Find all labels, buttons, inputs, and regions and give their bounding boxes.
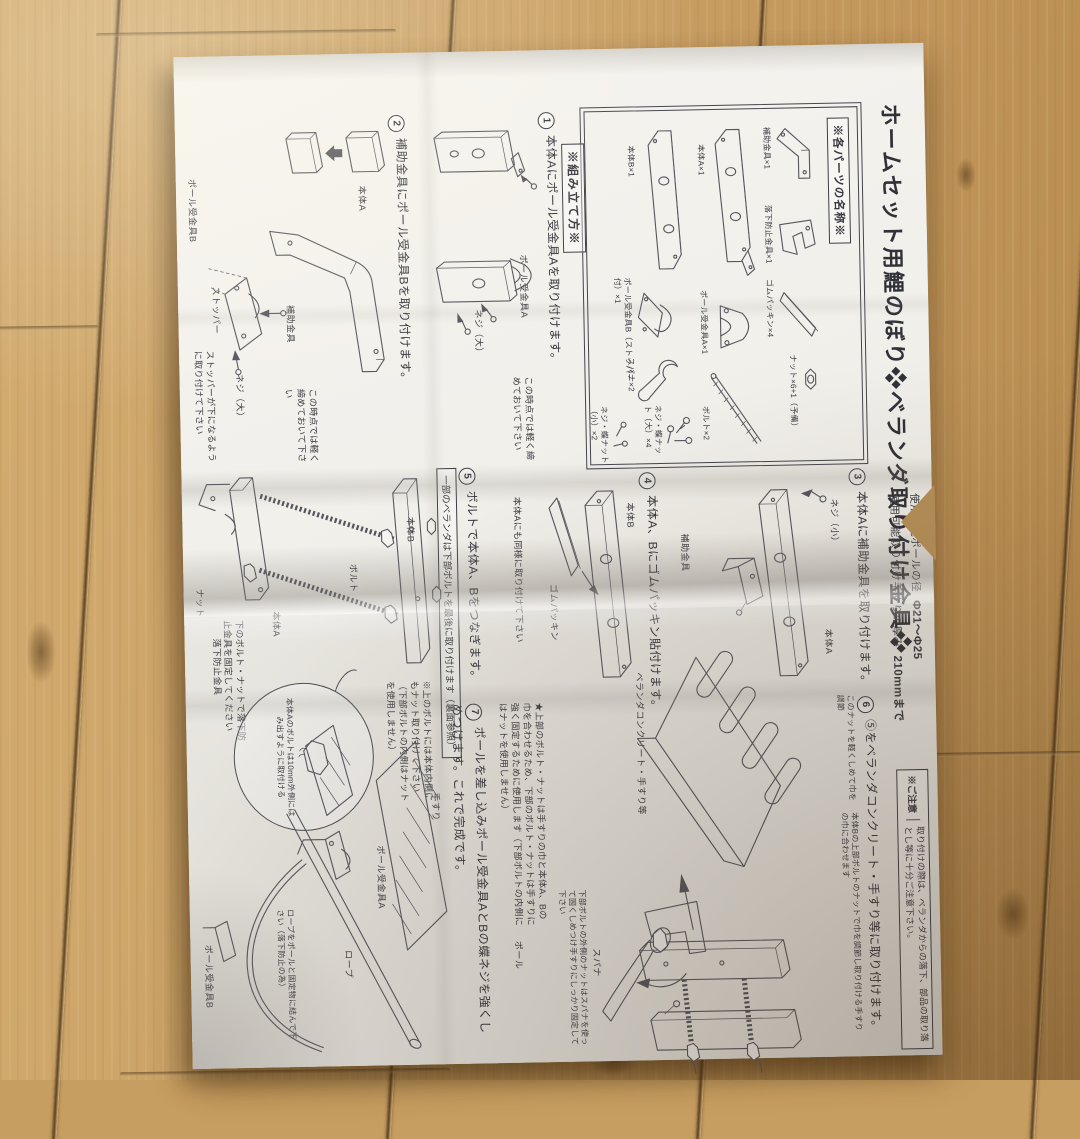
step7-number: 7	[465, 703, 482, 720]
part-honA-icon	[705, 121, 758, 280]
part-hojo-label: 補助金具×1	[761, 127, 772, 170]
step1-diagram	[412, 112, 543, 370]
part-hojo-bracket-icon	[773, 122, 818, 193]
spec-block: 使用可能ポールの径Φ21～Φ25 使用可能取り付け手すりの厚み210mmまで	[884, 493, 927, 722]
part-neji-dai-icon	[662, 412, 695, 457]
caution-text: 取り付けの際は、ベランダからの落下、部品の取り落とし等に十分ご注意下さい。	[902, 826, 930, 1043]
step7-pole-label: ポール	[512, 941, 526, 970]
part-honB-icon	[637, 122, 688, 281]
part-bolt-icon	[709, 367, 771, 456]
step2-diagram	[182, 115, 399, 471]
step5-heading: 5ボルトで本体A、Bをつなぎます。	[458, 467, 484, 683]
step3-heading: 3本体Aに補助金具を取り付けます。	[848, 468, 874, 688]
part-gomu-strip-icon	[776, 286, 823, 343]
spec-pole-label: 使用可能ポールの径	[908, 493, 922, 592]
part-gomu-label: ゴムパッキン×4	[764, 279, 775, 338]
plank-joint	[120, 1068, 450, 1077]
part-neji-dai-label: ネジ・蝶ナット（大）×4	[642, 405, 663, 461]
assembly-header: ※組み立て方※	[561, 143, 586, 252]
step1-note: この時点では軽く締めておいて下さい	[510, 376, 536, 466]
caution-box: ※ご注意 取り付けの際は、ベランダからの落下、部品の取り落とし等に十分ご注意下さ…	[896, 769, 933, 1050]
photo-of-instruction-sheet: { "title": "ホームセット用鯉のぼり❖ベランダ取り付け金具❖", "s…	[0, 0, 1080, 1080]
step7-star-note: ★上部のボルト・ナットは手すりの巾と本体A、Bの巾を合わせるため、下部のボルト・…	[496, 702, 549, 929]
part-nut-icon	[801, 368, 819, 392]
spec-wall-value: 210mmまで	[891, 655, 904, 721]
step1-section: 1本体Aにポール受金具Aを取り付けます。 ポール受金具A ネジ（大） この時点で…	[412, 112, 569, 467]
part-spana-label: スパナ×2	[625, 357, 636, 391]
plank-joint	[96, 29, 396, 37]
wood-knot	[956, 158, 976, 192]
part-honB-label: 本体B×1	[625, 145, 636, 177]
step7-spanner-diagram	[590, 881, 717, 1051]
part-ukeA-label: ポール受金具A×1	[698, 290, 709, 354]
step7-spana-label: スパナ	[591, 948, 605, 977]
part-rakka-clip-icon	[776, 210, 819, 263]
part-rakka-label: 落下防止金具×1	[762, 205, 773, 264]
step7-spanner-note: 下部ボルトの外側のナットはスパナを使って固くしめつけ手すりにしっかり固定して下さ…	[556, 890, 589, 1049]
part-neji-sho-label: ネジ・蝶ナット（小）×2	[588, 406, 609, 466]
part-spana-wrench-icon	[639, 359, 684, 408]
part-neji-sho-icon	[608, 418, 631, 458]
step5-diagram	[184, 466, 438, 686]
part-nut-label: ナット×6+1（予備）	[787, 354, 798, 431]
plank-seam	[1029, 0, 1080, 1139]
instruction-sheet: ホームセット用鯉のぼり❖ベランダ取り付け金具❖ 使用可能ポールの径Φ21～Φ25…	[173, 43, 942, 1069]
step6-number: 6	[857, 696, 874, 713]
step1-number: 1	[537, 112, 554, 129]
part-ukeA-icon	[712, 299, 755, 358]
spec-wall-label: 使用可能取り付け手すりの厚み	[888, 493, 903, 647]
step2-section: 2補助金具にポール受金具Bを取り付けます。 本体A 補助金具 ポール受金具B ス…	[178, 115, 417, 471]
document-content: ホームセット用鯉のぼり❖ベランダ取り付け金具❖ 使用可能ポールの径Φ21～Φ25…	[175, 47, 939, 1061]
step7-diagram	[190, 711, 462, 1061]
part-ukeB-icon	[636, 287, 685, 346]
step3-number: 3	[848, 468, 865, 485]
caution-tag: ※ご注意	[905, 775, 920, 820]
part-bolt-label: ボルト×2	[700, 406, 711, 440]
parts-header: ※各パーツの名称※	[827, 117, 851, 244]
plank-seam	[51, 0, 125, 1139]
plank-joint	[0, 325, 98, 330]
wood-knot	[26, 620, 56, 684]
parts-name-box: ※各パーツの名称※ 補助金具×1 落下防止金具×1 ゴムパッキン×4 ナット×6…	[583, 106, 864, 465]
spec-pole-value: Φ21～Φ25	[910, 600, 923, 660]
part-honA-label: 本体A×1	[695, 144, 706, 176]
step5-number: 5	[458, 468, 475, 485]
wood-knot	[996, 888, 1030, 940]
